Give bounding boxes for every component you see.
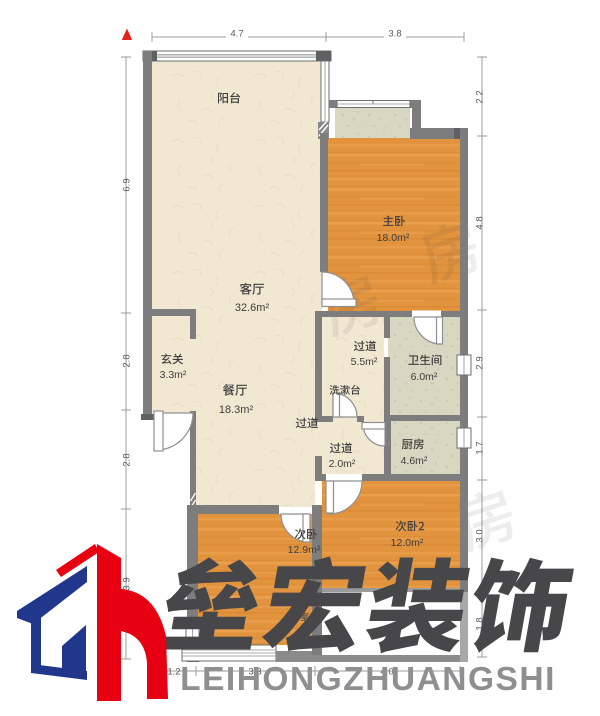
svg-text:18.0m²: 18.0m² [377, 232, 410, 244]
svg-text:3.3m²: 3.3m² [160, 369, 187, 381]
svg-text:LEIHONGZHUANGSHI: LEIHONGZHUANGSHI [180, 661, 556, 698]
svg-text:2.8: 2.8 [121, 453, 132, 466]
svg-text:4.8: 4.8 [474, 216, 485, 229]
svg-text:2.2: 2.2 [474, 90, 485, 103]
svg-text:32.6m²: 32.6m² [235, 302, 270, 314]
svg-text:6.9: 6.9 [121, 178, 132, 191]
svg-text:12.0m²: 12.0m² [391, 537, 424, 549]
svg-text:18.3m²: 18.3m² [219, 404, 254, 416]
svg-text:12.9m²: 12.9m² [288, 544, 321, 556]
svg-text:1.2: 1.2 [167, 666, 180, 677]
svg-text:2.9: 2.9 [474, 356, 485, 369]
svg-text:2.0m²: 2.0m² [329, 458, 356, 470]
svg-text:4.7: 4.7 [230, 28, 243, 39]
svg-text:3.8: 3.8 [388, 28, 401, 39]
svg-text:3.9: 3.9 [121, 577, 132, 590]
svg-text:4.6m²: 4.6m² [401, 455, 428, 467]
svg-text:5.5m²: 5.5m² [351, 356, 378, 368]
svg-text:6.0m²: 6.0m² [411, 371, 438, 383]
svg-text:1.7: 1.7 [474, 441, 485, 454]
svg-text:2.8: 2.8 [121, 354, 132, 367]
